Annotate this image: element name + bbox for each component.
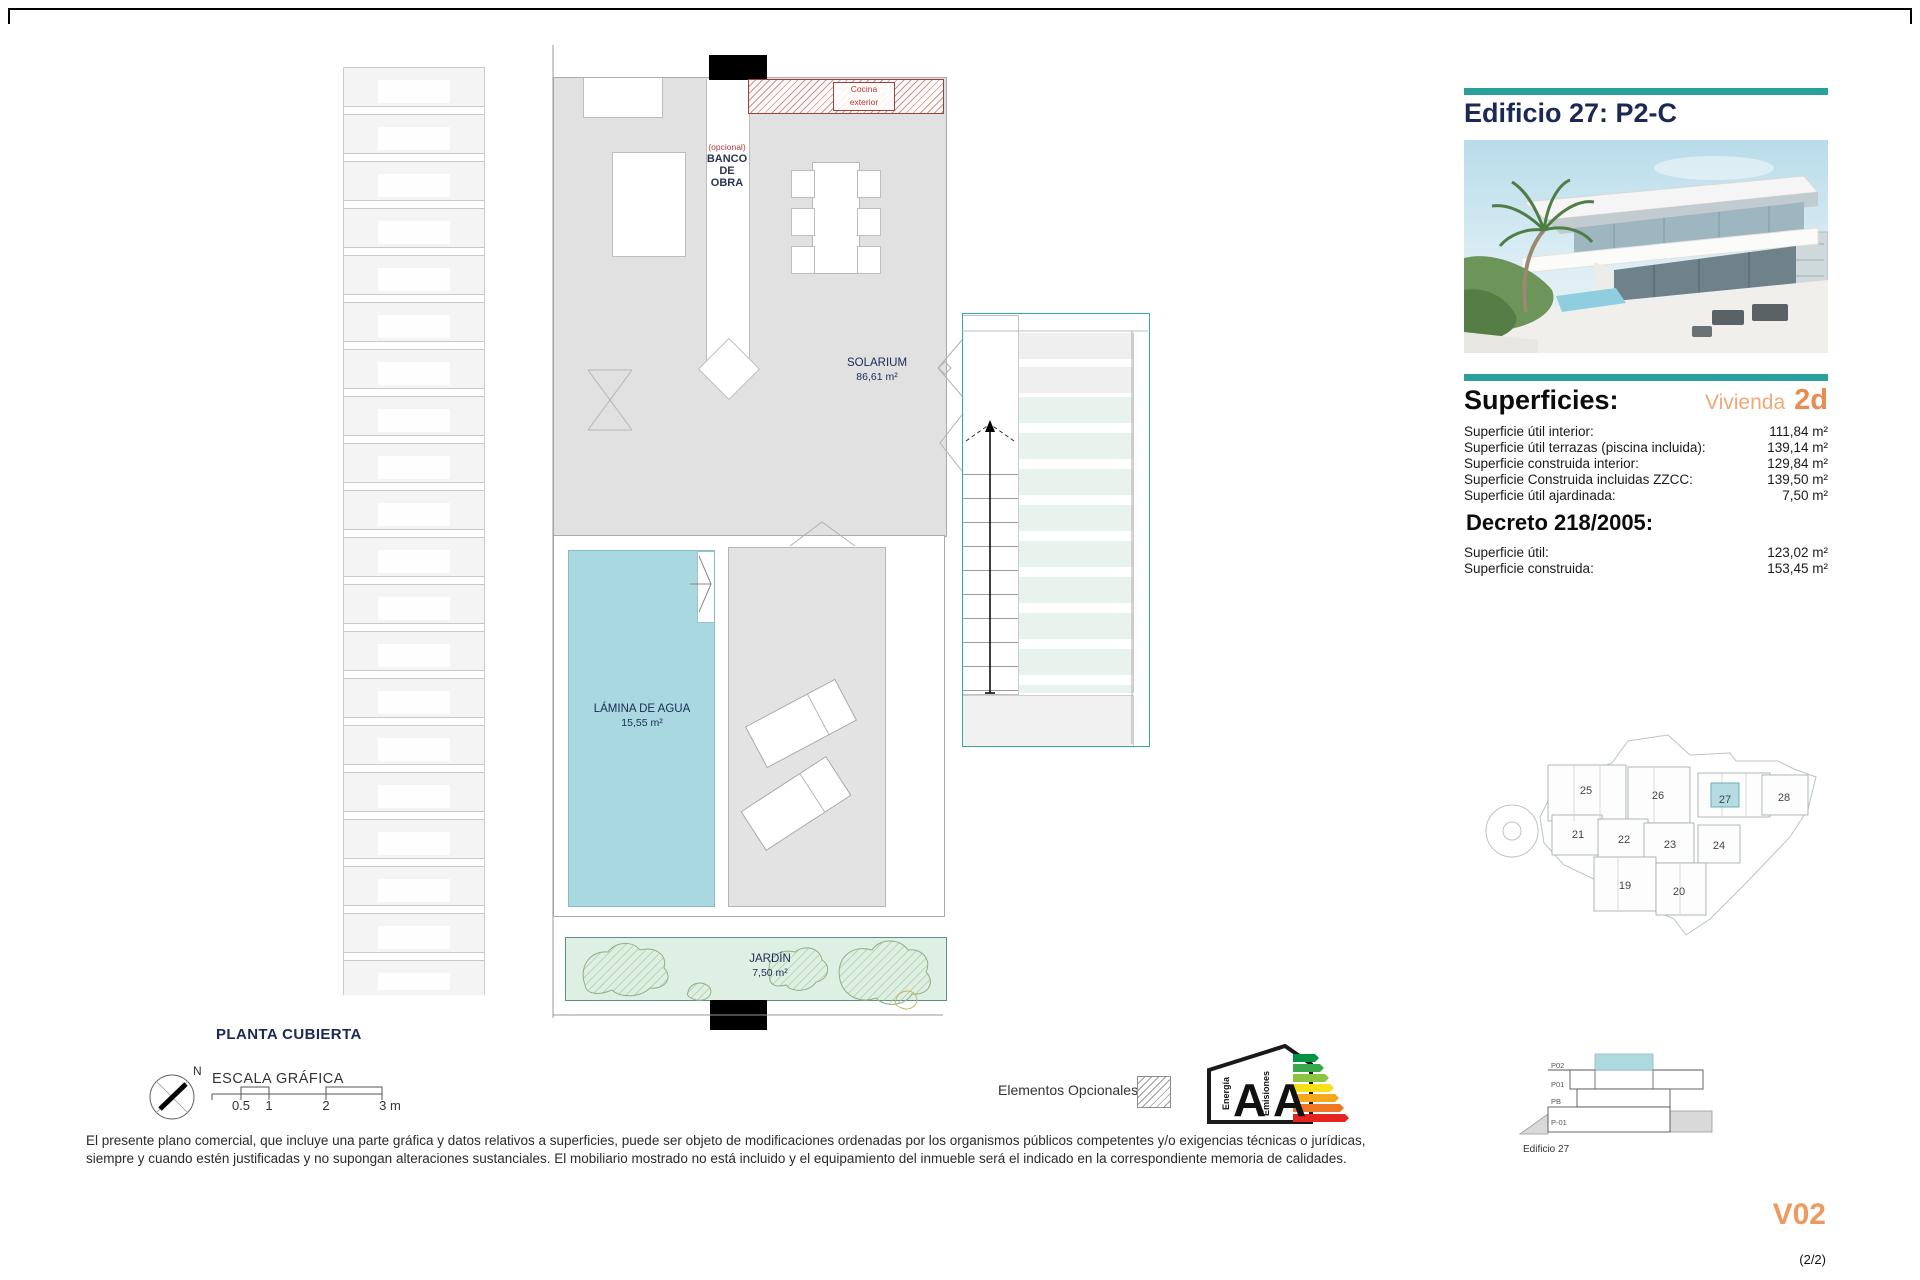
chair <box>857 170 881 198</box>
site-plan: 25 26 27 28 21 22 23 24 19 20 <box>1478 733 1862 965</box>
chimney-top <box>709 55 767 80</box>
building-render <box>1464 140 1828 353</box>
dining-table <box>812 162 860 274</box>
chair <box>857 246 881 274</box>
site-building-number: 28 <box>1778 792 1790 804</box>
section-caption: Edificio 27 <box>1523 1144 1570 1155</box>
vivienda-label: Vivienda <box>1705 391 1785 415</box>
superficie-row: Superficie útil terrazas (piscina inclui… <box>1464 440 1828 456</box>
site-building-number: 19 <box>1619 880 1631 892</box>
chair <box>791 246 815 274</box>
banco-de-obra-label: (opcional) BANCO DE OBRA <box>699 141 755 189</box>
section-floor-label: PB <box>1551 1097 1561 1106</box>
pool-area-value: 15,55 m² <box>580 716 704 730</box>
decreto-label: Superficie útil: <box>1464 545 1549 561</box>
decreto-label: Superficie construida: <box>1464 561 1594 577</box>
page-title: Edificio 27: P2-C <box>1464 98 1677 129</box>
site-building-number: 21 <box>1572 829 1584 841</box>
superficies-header: Superficies: Vivienda 2d <box>1464 384 1828 417</box>
cocina-line1: Cocina <box>834 83 894 96</box>
superficie-value: 7,50 m² <box>1782 488 1828 504</box>
scale-tick-label: 3 m <box>370 1098 410 1113</box>
roof-structure-box <box>612 152 686 257</box>
energy-left-label: Energía <box>1221 1076 1231 1110</box>
superficie-row: Superficie Construida incluidas ZZCC: 13… <box>1464 472 1828 488</box>
teal-bar-top <box>1464 88 1828 95</box>
sheet-frame-stub-left <box>8 8 10 24</box>
scale-tick-label: 2 <box>313 1098 339 1113</box>
energy-right-value: A <box>1273 1074 1306 1126</box>
stair-wing-outline <box>962 313 1150 747</box>
superficie-label: Superficie útil ajardinada: <box>1464 488 1616 504</box>
scale-tick-label: 0.5 <box>228 1098 254 1113</box>
decreto-row: Superficie construida: 153,45 m² <box>1464 561 1828 577</box>
optional-elements-label: Elementos Opcionales <box>998 1082 1138 1098</box>
superficie-row: Superficie útil ajardinada: 7,50 m² <box>1464 488 1828 504</box>
skylight-box <box>583 78 663 118</box>
building-section-diagram: P02 P01 PB P-01 Edificio 27 <box>1515 1042 1805 1160</box>
page-indicator: (2/2) <box>1700 1252 1826 1267</box>
pool-steps-notch <box>697 551 714 623</box>
compass-north-label: N <box>193 1064 202 1078</box>
garden-label: JARDÍN 7,50 m² <box>710 952 830 980</box>
version-label: V02 <box>1700 1198 1826 1232</box>
superficie-value: 139,14 m² <box>1767 440 1828 456</box>
scale-heading: ESCALA GRÁFICA <box>212 1071 344 1087</box>
superficie-row: Superficie construida interior: 129,84 m… <box>1464 456 1828 472</box>
garden-area-value: 7,50 m² <box>710 966 830 980</box>
site-building-number: 22 <box>1618 834 1630 846</box>
chimney-bottom <box>710 1000 767 1030</box>
section-floor-pb <box>1577 1089 1670 1107</box>
energy-rating-icon: Energía A Emisiones A <box>1203 1038 1363 1130</box>
sheet-frame-stub-right <box>1910 8 1912 24</box>
neighbor-roofs-detail <box>378 72 450 990</box>
banco-optional: (opcional) <box>699 141 755 153</box>
cocina-line2: exterior <box>834 96 894 109</box>
section-floor-label: P-01 <box>1551 1118 1567 1127</box>
banco-line2: DE <box>699 165 755 177</box>
site-building-number: 24 <box>1713 840 1725 852</box>
banco-de-obra-strip <box>706 79 750 379</box>
scale-tick-label: 1 <box>256 1098 282 1113</box>
decreto-value: 123,02 m² <box>1767 545 1828 561</box>
superficies-heading: Superficies: <box>1464 385 1619 416</box>
site-building-number: 20 <box>1673 886 1685 898</box>
section-highlight-floor <box>1595 1054 1653 1070</box>
optional-elements-swatch <box>1137 1076 1171 1108</box>
disclaimer-line1: El presente plano comercial, que incluye… <box>86 1133 1486 1148</box>
superficie-label: Superficie Construida incluidas ZZCC: <box>1464 472 1693 488</box>
plan-title: PLANTA CUBIERTA <box>216 1026 362 1043</box>
superficie-value: 139,50 m² <box>1767 472 1828 488</box>
section-floor-p01 <box>1570 1070 1703 1089</box>
banco-line1: BANCO <box>699 153 755 165</box>
section-floor-label: P02 <box>1551 1061 1564 1070</box>
site-building-number: 26 <box>1652 790 1664 802</box>
site-building-number: 25 <box>1580 785 1592 797</box>
superficie-value: 111,84 m² <box>1769 424 1828 440</box>
site-building-number: 23 <box>1664 839 1676 851</box>
disclaimer-line2: siempre y cuando estén justificadas y no… <box>86 1151 1486 1166</box>
chair <box>857 208 881 236</box>
chair <box>791 170 815 198</box>
section-floor-label: P01 <box>1551 1080 1564 1089</box>
solarium-label: SOLARIUM 86,61 m² <box>817 356 937 384</box>
superficie-row: Superficie útil interior: 111,84 m² <box>1464 424 1828 440</box>
decreto-row: Superficie útil: 123,02 m² <box>1464 545 1828 561</box>
vivienda-value: 2d <box>1794 384 1828 417</box>
superficie-value: 129,84 m² <box>1767 456 1828 472</box>
banco-line3: OBRA <box>699 177 755 189</box>
sheet-frame-line <box>8 8 1912 10</box>
garden-name: JARDÍN <box>710 952 830 966</box>
site-building-number: 27 <box>1719 794 1731 806</box>
pool-name: LÁMINA DE AGUA <box>580 702 704 716</box>
superficie-label: Superficie útil interior: <box>1464 424 1594 440</box>
teal-bar-middle <box>1464 374 1828 381</box>
superficie-label: Superficie útil terrazas (piscina inclui… <box>1464 440 1706 456</box>
pool-label: LÁMINA DE AGUA 15,55 m² <box>580 702 704 730</box>
cocina-exterior-label: Cocina exterior <box>833 82 895 111</box>
solarium-name: SOLARIUM <box>817 356 937 370</box>
decreto-value: 153,45 m² <box>1767 561 1828 577</box>
energy-right-label: Emisiones <box>1261 1071 1271 1116</box>
decreto-heading: Decreto 218/2005: <box>1466 510 1653 536</box>
solarium-area-value: 86,61 m² <box>817 370 937 384</box>
chair <box>791 208 815 236</box>
brochure-page: PLANTA CUBIERTA N ESCALA GRÁFICA 0.5 1 2… <box>0 0 1920 1280</box>
superficie-label: Superficie construida interior: <box>1464 456 1639 472</box>
compass-icon <box>150 1075 194 1119</box>
